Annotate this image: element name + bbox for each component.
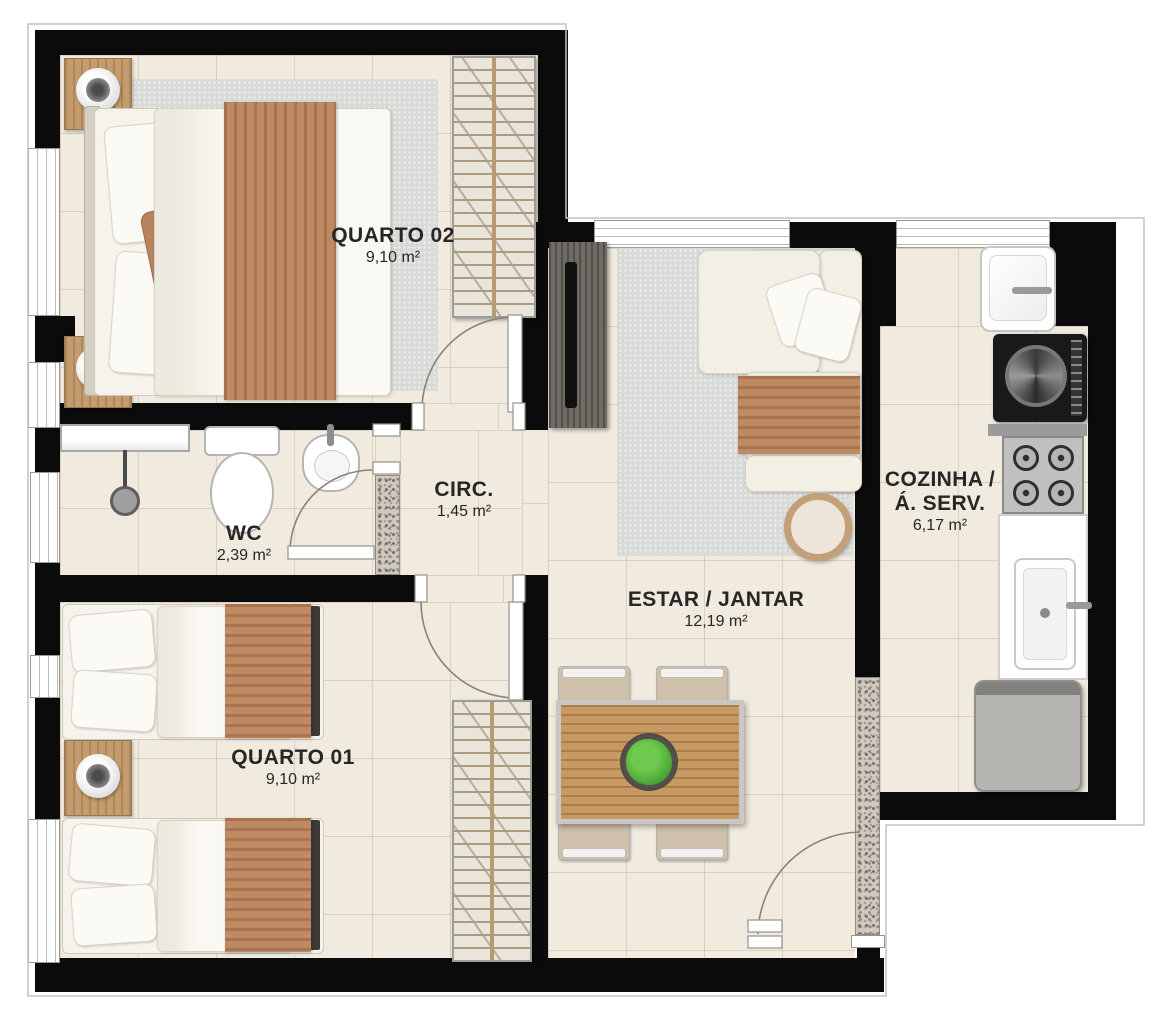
door-jamb <box>513 575 525 602</box>
room-area: 12,19 m² <box>628 613 804 631</box>
door-jamb <box>415 575 427 602</box>
room-name-line2: Á. SERV. <box>885 492 995 516</box>
door-arc-quarto01 <box>421 602 517 698</box>
room-area: 6,17 m² <box>885 517 995 535</box>
room-name: QUARTO 02 <box>331 224 454 248</box>
door-jamb <box>513 403 525 430</box>
door-arc-entry <box>758 832 860 934</box>
room-label-wc: WC 2,39 m² <box>217 522 271 565</box>
door-leaf-wc <box>288 546 374 559</box>
room-label-estar: ESTAR / JANTAR 12,19 m² <box>628 588 804 631</box>
room-name: WC <box>217 522 271 546</box>
room-label-quarto01: QUARTO 01 9,10 m² <box>231 746 354 789</box>
door-jamb-entry <box>748 920 782 932</box>
room-name: ESTAR / JANTAR <box>628 588 804 612</box>
door-leaf-quarto01 <box>509 602 523 700</box>
room-area: 9,10 m² <box>331 249 454 267</box>
doors-overlay <box>0 0 1174 1024</box>
door-arc-quarto02 <box>422 317 515 410</box>
room-label-quarto02: QUARTO 02 9,10 m² <box>331 224 454 267</box>
room-area: 9,10 m² <box>231 771 354 789</box>
door-jamb <box>373 462 400 474</box>
room-area: 2,39 m² <box>217 547 271 565</box>
room-name: CIRC. <box>434 478 493 502</box>
door-jamb <box>412 403 424 430</box>
room-area: 1,45 m² <box>434 503 493 521</box>
room-name-line1: COZINHA / <box>885 468 995 492</box>
door-jamb-entry <box>748 936 782 948</box>
door-arc-wc <box>290 470 372 552</box>
room-label-circ: CIRC. 1,45 m² <box>434 478 493 521</box>
door-leaf-quarto02 <box>508 315 522 412</box>
floor-plan: QUARTO 02 9,10 m² WC 2,39 m² CIRC. 1,45 … <box>0 0 1174 1024</box>
room-label-cozinha: COZINHA / Á. SERV. 6,17 m² <box>885 468 995 535</box>
room-name: QUARTO 01 <box>231 746 354 770</box>
door-jamb <box>373 424 400 436</box>
